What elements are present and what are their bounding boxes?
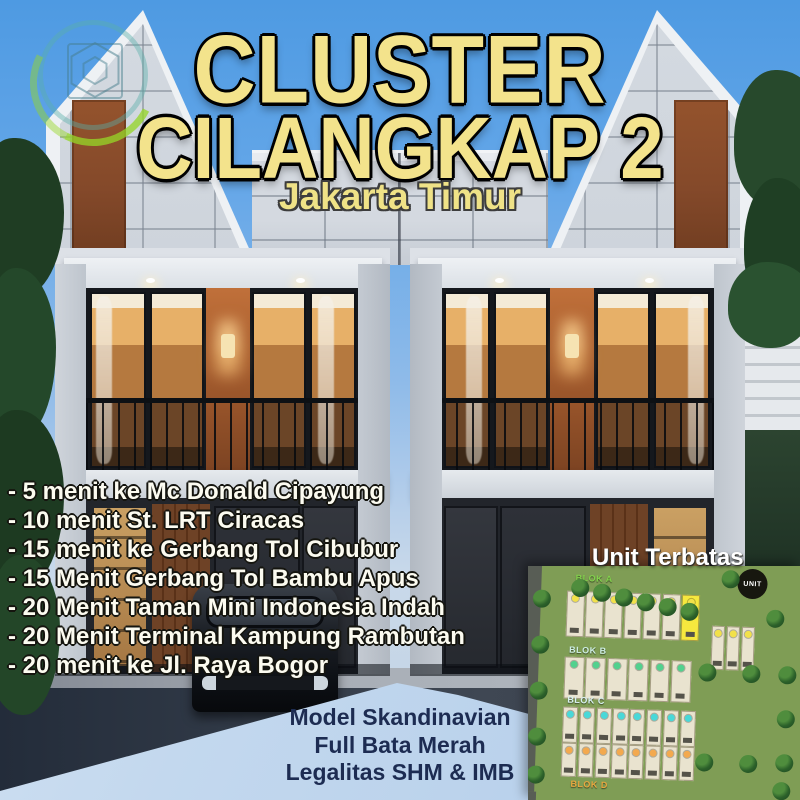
unit-marker (684, 715, 691, 722)
roof-mark (598, 769, 607, 774)
roof-mark (683, 738, 692, 743)
tree-icon (739, 755, 758, 774)
unit-lot (606, 658, 627, 701)
roof-mark (589, 628, 598, 633)
roof-mark (628, 630, 637, 635)
unit-marker (567, 711, 574, 718)
unit-marker (678, 664, 685, 671)
unit-marker (617, 712, 624, 719)
unit-lot (612, 708, 629, 745)
roof-mark (581, 768, 590, 773)
road-right (528, 791, 536, 800)
roof-mark (655, 693, 664, 698)
benefit-item: - 20 Menit Terminal Kampung Rambutan (8, 622, 568, 651)
roof-mark (647, 630, 656, 635)
unit-marker (600, 712, 607, 719)
roof-mark (713, 661, 722, 666)
benefit-item: - 15 Menit Gerbang Tol Bambu Apus (8, 564, 568, 593)
unit-lot (678, 747, 694, 782)
unit-lot (645, 745, 661, 780)
unit-lot (562, 706, 579, 743)
unit-lot (595, 708, 612, 745)
tree-icon (772, 782, 791, 800)
downlight (645, 278, 654, 283)
roof-mark (633, 692, 642, 697)
roof-mark (632, 736, 641, 741)
unit-lot (629, 709, 646, 746)
roof-mark (616, 735, 625, 740)
unit-marker (571, 661, 578, 668)
unit-lot (579, 707, 596, 744)
tree-icon (698, 663, 717, 682)
tree-icon (776, 710, 795, 729)
footer-line: Full Bata Merah (250, 732, 550, 760)
tree-icon (528, 765, 545, 784)
unit-lot (628, 659, 649, 702)
camera-hexagon-icon (48, 26, 140, 118)
unit-marker (730, 630, 737, 637)
benefit-item: - 10 menit St. LRT Ciracas (8, 506, 568, 535)
unit-lot (661, 746, 677, 781)
unit-marker (666, 750, 673, 757)
unit-lot (577, 743, 593, 778)
unit-lot (710, 626, 725, 670)
roof-mark (599, 735, 608, 740)
tree-icon (742, 665, 761, 684)
unit-marker (650, 750, 657, 757)
unit-marker (566, 747, 573, 754)
unit-marker (668, 714, 675, 721)
footer-line: Legalitas SHM & IMB (250, 759, 550, 787)
benefit-item: - 20 Menit Taman Mini Indonesia Indah (8, 593, 568, 622)
siteplan-map: BLOK ABLOK BBLOK CBLOK DUNIT (528, 566, 800, 800)
unit-marker (633, 749, 640, 756)
siteplan-content: BLOK ABLOK BBLOK CBLOK DUNIT (528, 566, 800, 800)
unit-marker (715, 630, 722, 637)
unit-marker (634, 713, 641, 720)
roof-mark (685, 632, 694, 637)
tree-icon (778, 666, 797, 685)
unit-marker (651, 714, 658, 721)
unit-marker (582, 747, 589, 754)
blok-label: BLOK D (570, 779, 608, 790)
unit-lot (646, 709, 663, 746)
roof-mark (608, 629, 617, 634)
unit-marker (635, 663, 642, 670)
unit-lot (679, 711, 696, 748)
roof-mark (648, 770, 657, 775)
roof-mark (666, 631, 675, 636)
unit-lot (663, 710, 680, 747)
watermark-logo (14, 6, 138, 132)
roof-mark (728, 661, 737, 666)
footer-text: Model Skandinavian Full Bata Merah Legal… (250, 704, 550, 787)
unit-lot (649, 660, 670, 703)
benefit-item: - 20 menit ke Jl. Raya Bogor (8, 651, 568, 680)
tree-icon (775, 754, 794, 773)
roof-mark (582, 734, 591, 739)
poster-canvas: CLUSTER CILANGKAP 2 Jakarta Timur - 5 me… (0, 0, 800, 800)
blok-label: BLOK B (569, 645, 607, 656)
tree-icon (766, 610, 785, 629)
roof-mark (649, 737, 658, 742)
blok-label: BLOK C (567, 695, 605, 706)
unit-lot (670, 660, 691, 703)
balcony-railing (442, 398, 714, 478)
unit-lot (566, 591, 585, 638)
unit-marker (592, 661, 599, 668)
unit-lot (585, 657, 606, 700)
unit-lot (594, 744, 610, 779)
unit-marker (614, 662, 621, 669)
roof-mark (612, 691, 621, 696)
roof-mark (631, 770, 640, 775)
unit-marker (599, 748, 606, 755)
tree-icon (529, 681, 548, 700)
unit-lot (611, 744, 627, 779)
tree-icon (695, 753, 714, 772)
downlight (495, 278, 504, 283)
unit-lot (628, 745, 644, 780)
roof-mark (676, 693, 685, 698)
unit-marker (656, 664, 663, 671)
balcony-canopy (418, 258, 736, 288)
wall-sconce-lamp (565, 334, 579, 358)
roof-mark (665, 771, 674, 776)
unit-marker (584, 711, 591, 718)
benefit-item: - 15 menit ke Gerbang Tol Cibubur (8, 535, 568, 564)
unit-lot (725, 626, 740, 670)
benefits-list: - 5 menit ke Mc Donald Cipayung- 10 meni… (8, 477, 568, 680)
unit-lot (561, 742, 577, 777)
unit-marker (683, 751, 690, 758)
tree-icon (528, 727, 546, 746)
roof-mark (565, 734, 574, 739)
footer-line: Model Skandinavian (250, 704, 550, 732)
unit-marker (616, 748, 623, 755)
unit-badge: UNIT (737, 569, 768, 600)
roof-mark (681, 772, 690, 777)
benefit-item: - 5 menit ke Mc Donald Cipayung (8, 477, 568, 506)
roof-mark (614, 769, 623, 774)
unit-marker (745, 631, 752, 638)
tree-foliage (728, 262, 800, 348)
roof-mark (564, 768, 573, 773)
wood-accent-panel (674, 100, 728, 262)
roof-mark (570, 628, 579, 633)
siteplan-caption: Unit Terbatas (592, 546, 792, 570)
roof-mark (666, 737, 675, 742)
